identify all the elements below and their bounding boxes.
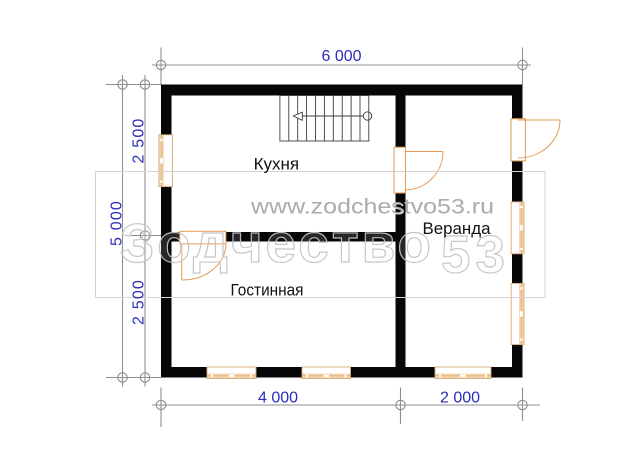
svg-text:2 000: 2 000	[440, 390, 480, 407]
svg-text:6 000: 6 000	[321, 48, 361, 65]
svg-text:2 500: 2 500	[131, 117, 148, 163]
svg-text:Кухня: Кухня	[254, 155, 300, 174]
svg-text:5 000: 5 000	[109, 200, 126, 246]
svg-text:www.zodchestvo53.ru: www.zodchestvo53.ru	[250, 195, 494, 219]
svg-text:Зодчество: Зодчество	[120, 212, 431, 274]
svg-text:Веранда: Веранда	[423, 220, 492, 238]
svg-text:Гостинная: Гостинная	[231, 281, 304, 300]
svg-text:4 000: 4 000	[258, 390, 298, 407]
svg-text:2 500: 2 500	[131, 279, 148, 325]
